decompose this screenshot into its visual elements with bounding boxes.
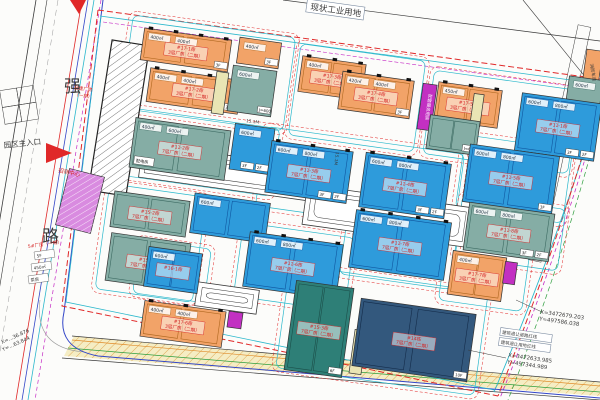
entrance-label: 园区主入口 [3, 136, 41, 150]
building-11-4: 600㎡800㎡#11-4栋7层厂房（二期）2F3F [359, 150, 452, 219]
adjacent-plots [0, 85, 39, 124]
building-17-1b: 400㎡3F [236, 37, 281, 69]
loading-dock [218, 309, 223, 313]
entrance-arrow-icon [46, 143, 72, 163]
left-tag: 泵房 [28, 273, 49, 284]
building-17-1: 400㎡400㎡#17-1栋3层厂房（二期）3F [140, 26, 232, 72]
loading-dock [416, 216, 421, 220]
loading-dock [360, 208, 365, 212]
loading-dock [308, 238, 313, 242]
building-16-1: 600㎡#16-1栋 [143, 246, 202, 293]
loading-dock [149, 26, 154, 30]
building-11-1: 600㎡800㎡#11-1栋7层厂房（二期）2F3F [514, 93, 600, 162]
loading-dock [181, 70, 186, 74]
building-marketing-center [56, 169, 105, 234]
building-17-4: 420㎡400㎡#17-4栋3层厂房（二期）3F [338, 69, 415, 119]
coordinate-callout-1: X=3472679.203 Y=497586.038 [538, 309, 585, 328]
loading-dock [224, 37, 229, 41]
building-mag-s1 [227, 311, 243, 329]
building-fill [227, 311, 243, 329]
leader-line [468, 350, 506, 358]
loading-dock [332, 58, 337, 62]
setback-labels: 建筑退让道路红线 建筑退让用地红线 [498, 328, 552, 353]
building-hatch [56, 169, 105, 234]
loading-dock [155, 66, 160, 70]
street-width-label: 15.1M [246, 118, 260, 125]
building-mag-s2 [503, 261, 518, 284]
loading-dock [494, 87, 499, 91]
loading-dock [174, 30, 179, 34]
left-tag: 450㎡ [31, 261, 52, 272]
loading-dock [307, 54, 312, 58]
site-plan-drawing: 400㎡400㎡#17-1栋3层厂房（二期）3F400㎡3F400㎡400㎡#1… [0, 0, 600, 400]
loading-dock [311, 144, 316, 148]
loading-dock [443, 80, 448, 84]
building-teal-a: 600㎡J=600 [227, 65, 277, 117]
loading-dock [407, 156, 412, 160]
loading-dock [281, 234, 286, 238]
loading-dock [377, 74, 382, 78]
coordinate-callout-2: X=3472633.985 Y=497344.989 [506, 353, 553, 372]
leader-line [516, 300, 542, 312]
plot-square [19, 102, 38, 121]
loading-dock [345, 149, 350, 153]
building-15-3: #15-3栋7层厂房（二期）6F [284, 280, 354, 377]
building-15-2: #15-2栋7层厂房（二期） [110, 191, 190, 237]
plot-square [2, 105, 21, 124]
loading-dock [469, 84, 474, 88]
loading-dock [183, 304, 188, 308]
parcel-label: 现状工业用地 [306, 0, 365, 20]
loading-dock [370, 151, 375, 155]
building-fill [503, 261, 518, 284]
loading-dock [358, 61, 363, 65]
loading-dock [254, 230, 259, 234]
loading-dock [406, 78, 411, 82]
built-label-2: （一期） [74, 92, 93, 101]
site-plan-canvas: 400㎡400㎡#17-1栋3层厂房（二期）3F400㎡3F400㎡400㎡#1… [0, 0, 600, 400]
building-17-7: 400㎡#17-7栋3层厂房（二期） [447, 250, 507, 301]
left-tag-boxes: 5F450㎡泵房 [28, 249, 55, 284]
loading-dock [444, 220, 449, 224]
loading-dock [207, 74, 212, 78]
loading-dock [443, 161, 448, 165]
loading-dock [276, 139, 281, 143]
loading-dock [199, 33, 204, 37]
loading-dock [149, 299, 154, 303]
coordinate-callout-3: X=…36.876 Y=…63.844 [0, 328, 33, 353]
north-entry-arrow-icon [70, 0, 86, 14]
loading-dock [388, 212, 393, 216]
loading-dock [347, 70, 352, 74]
building-11-3: 600㎡800㎡#11-3栋7层厂房（二期）2F3F [265, 138, 354, 203]
plot-square [0, 88, 19, 107]
loading-dock [335, 242, 340, 246]
